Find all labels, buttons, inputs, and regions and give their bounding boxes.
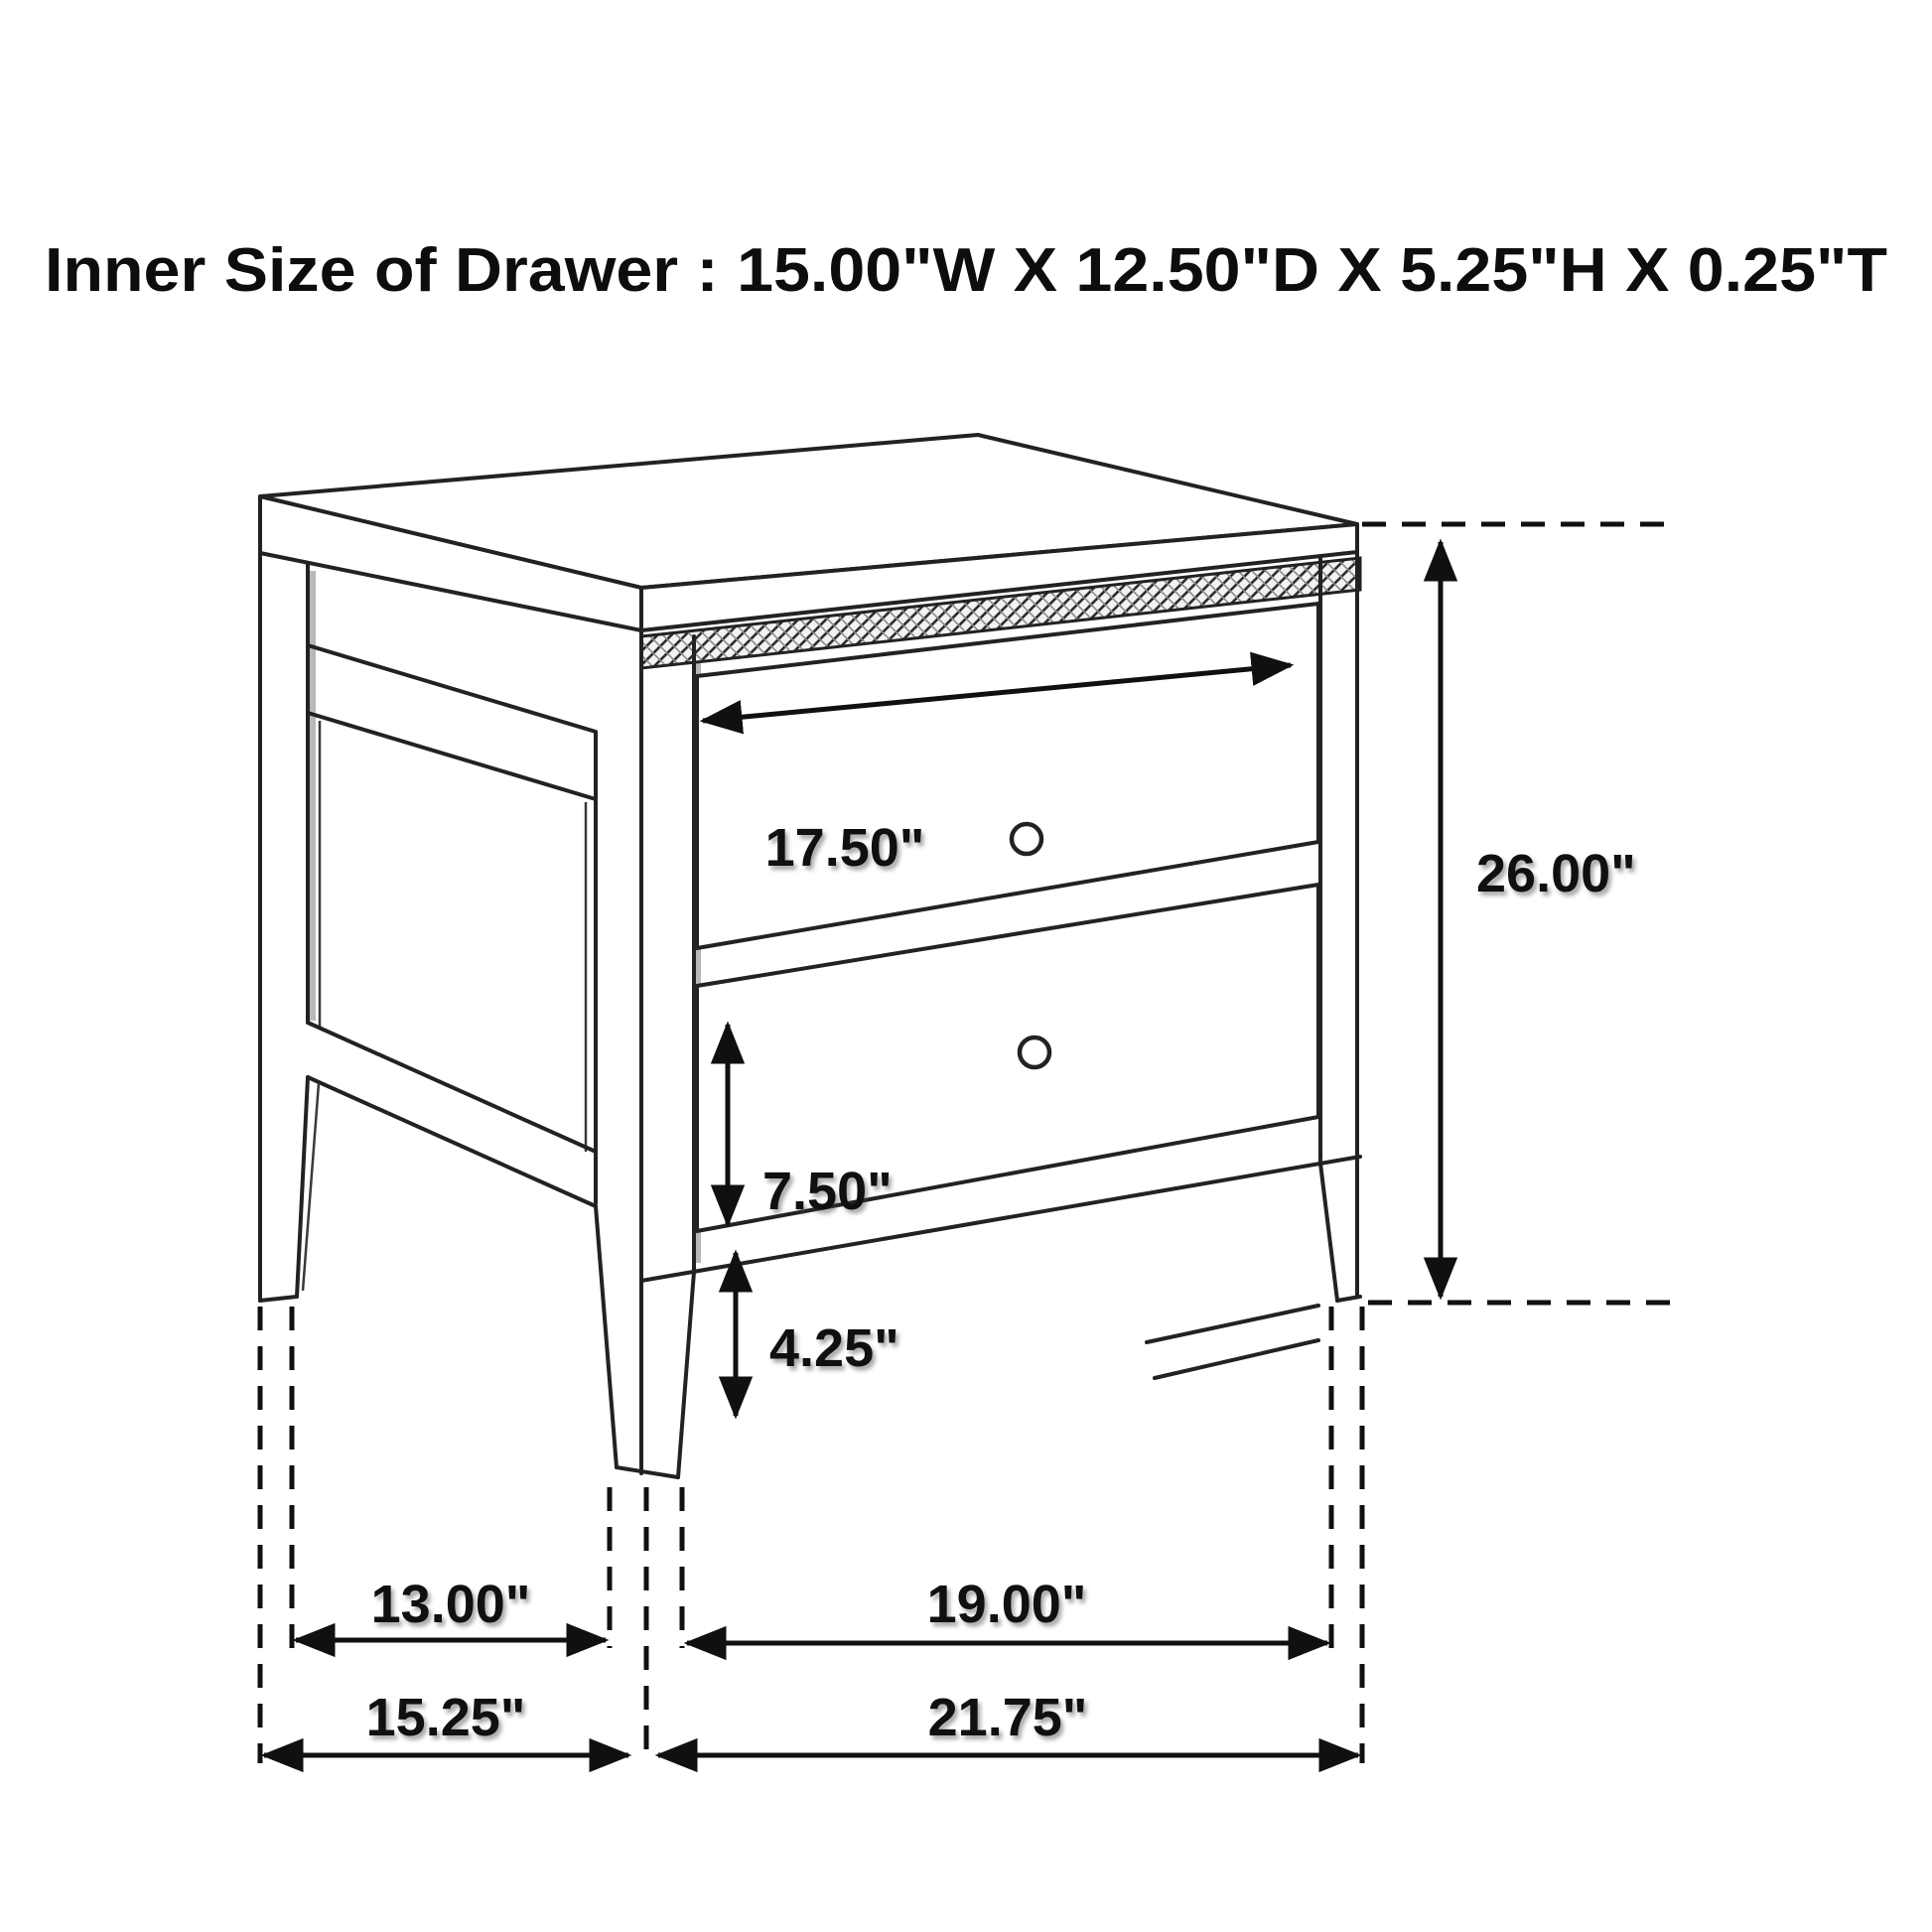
front-left-foot-bottom [617, 1467, 678, 1477]
label-depth-between-legs: 13.00" [371, 1575, 531, 1634]
side-top-rail-upper-line [308, 645, 596, 732]
label-bottom-drawer-height: 7.50" [762, 1162, 893, 1221]
front-right-stile-inner-edge [1320, 556, 1337, 1301]
front-left-leg-taper [596, 1206, 617, 1467]
front-left-stile-inner-edge [678, 636, 694, 1477]
label-overall-depth: 15.25" [366, 1688, 526, 1747]
page-title: Inner Size of Drawer : 15.00"W X 12.50"D… [45, 236, 1887, 305]
back-left-leg-taper [297, 1077, 308, 1297]
top-drawer-knob-icon [1012, 824, 1041, 854]
rear-rail-through-gap-top [1147, 1306, 1318, 1342]
label-width-between-legs: 19.00" [927, 1575, 1087, 1634]
front-right-foot-bottom [1337, 1297, 1360, 1301]
side-bottom-rail-top-edge [308, 1023, 596, 1152]
label-overall-height: 26.00" [1476, 844, 1636, 903]
back-left-foot-bottom [260, 1297, 297, 1301]
diagram-page: Inner Size of Drawer : 15.00"W X 12.50"D… [0, 0, 1932, 1932]
label-drawer-front-width: 17.50" [765, 818, 925, 878]
side-bottom-rail-bottom-edge [308, 1077, 596, 1206]
bottom-drawer-knob-icon [1020, 1037, 1049, 1067]
nightstand-dimension-diagram: Inner Size of Drawer : 15.00"W X 12.50"D… [0, 0, 1932, 1932]
label-overall-width: 21.75" [928, 1688, 1088, 1747]
rear-rail-through-gap-bottom [1155, 1340, 1318, 1378]
label-leg-height: 4.25" [769, 1318, 899, 1378]
top-drawer-front [697, 604, 1318, 948]
side-top-rail-lower-line [308, 713, 596, 799]
